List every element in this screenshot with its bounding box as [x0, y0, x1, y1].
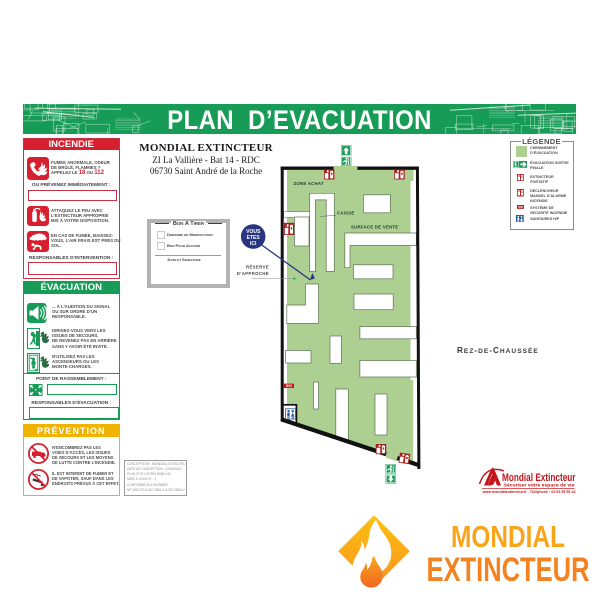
svg-text:www.mondialextincteur.fr - T: www.mondialextincteur.fr - Téléphone : 0… [481, 490, 575, 494]
svg-text:Sécuriser votre espace de vie: Sécuriser votre espace de vie [504, 483, 575, 488]
svg-text:EXTINCTEUR: EXTINCTEUR [427, 551, 590, 589]
svg-text:RÉSERVE: RÉSERVE [246, 265, 269, 270]
svg-text:CAISSE: CAISSE [337, 210, 355, 215]
svg-text:ICI: ICI [250, 241, 257, 247]
svg-text:SURFACE DE VENTE: SURFACE DE VENTE [351, 224, 398, 229]
svg-text:MONDIAL: MONDIAL [451, 520, 565, 554]
svg-text:D’APPROCHE: D’APPROCHE [237, 271, 269, 276]
svg-text:ZONE ACHAT: ZONE ACHAT [294, 181, 324, 186]
svg-text:SSI: SSI [286, 384, 292, 388]
